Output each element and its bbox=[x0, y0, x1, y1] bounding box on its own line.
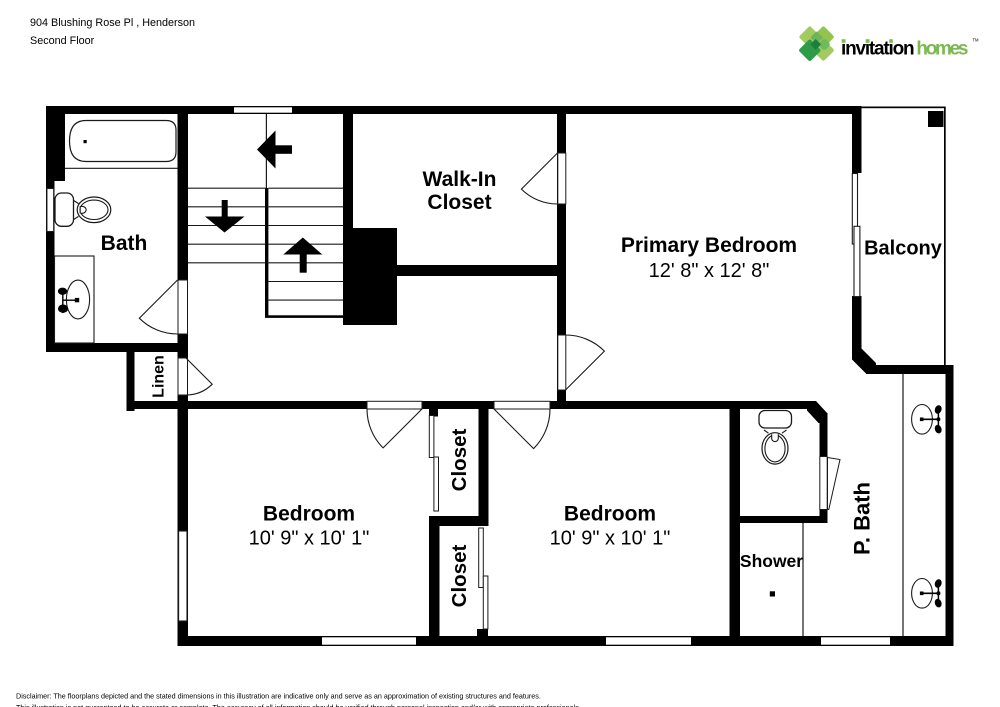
svg-text:invitation homes: invitation homes bbox=[841, 39, 968, 60]
svg-text:10' 9" x 10' 1": 10' 9" x 10' 1" bbox=[249, 528, 370, 550]
svg-text:Bath: Bath bbox=[101, 232, 148, 255]
svg-text:Bedroom: Bedroom bbox=[564, 503, 656, 526]
svg-text:Closet: Closet bbox=[448, 545, 471, 608]
svg-text:Walk-In: Walk-In bbox=[423, 168, 497, 191]
svg-text:Closet: Closet bbox=[427, 191, 491, 214]
svg-text:This illustration is not guara: This illustration is not guaranteed to b… bbox=[16, 703, 581, 707]
svg-text:10' 9" x 10' 1": 10' 9" x 10' 1" bbox=[550, 528, 671, 550]
svg-text:Bedroom: Bedroom bbox=[263, 503, 355, 526]
svg-text:Second Floor: Second Floor bbox=[30, 35, 95, 47]
svg-text:Closet: Closet bbox=[448, 429, 471, 492]
svg-text:12' 8" x 12' 8": 12' 8" x 12' 8" bbox=[649, 260, 770, 282]
svg-text:Primary Bedroom: Primary Bedroom bbox=[621, 234, 797, 257]
svg-text:Shower: Shower bbox=[740, 551, 803, 571]
svg-text:Disclaimer: The floorplans dep: Disclaimer: The floorplans depicted and … bbox=[16, 691, 541, 700]
svg-text:Balcony: Balcony bbox=[864, 238, 943, 260]
svg-text:904 Blushing Rose Pl , Henders: 904 Blushing Rose Pl , Henderson bbox=[30, 17, 195, 29]
svg-text:TM: TM bbox=[973, 38, 980, 43]
svg-text:P. Bath: P. Bath bbox=[849, 482, 874, 555]
svg-text:Linen: Linen bbox=[151, 355, 168, 398]
